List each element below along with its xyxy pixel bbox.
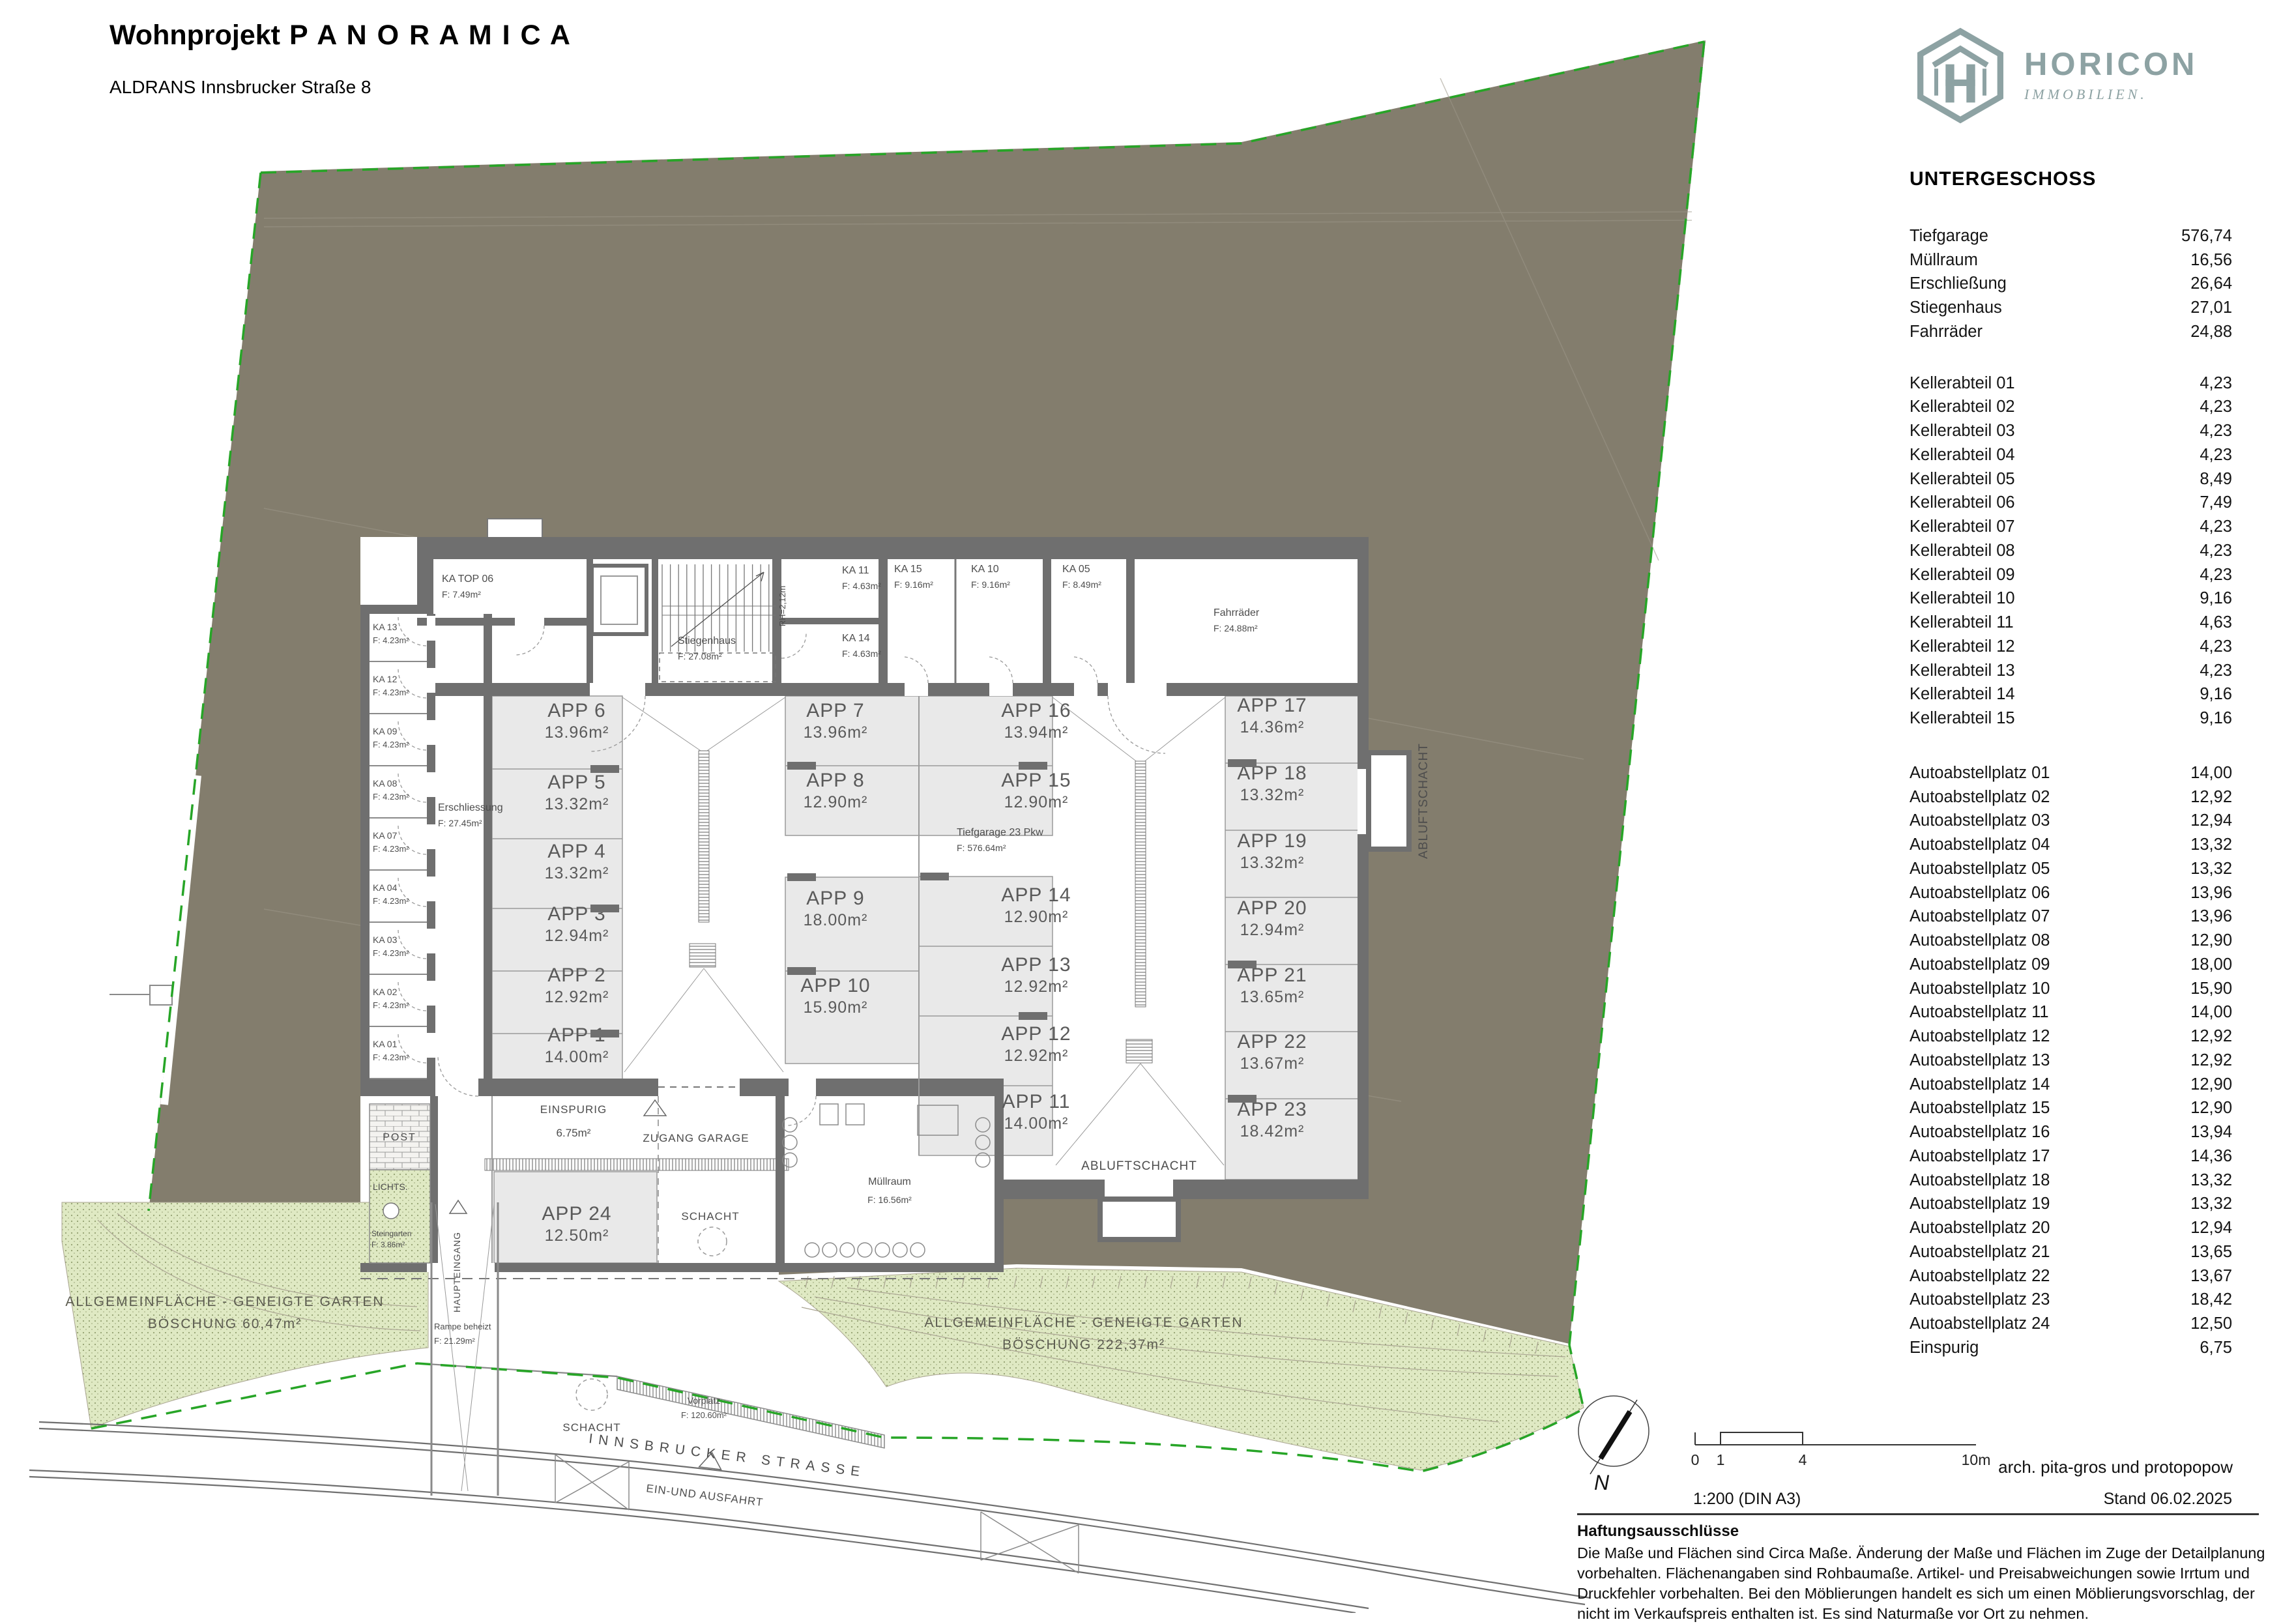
table-row: Autoabstellplatz 2213,67: [1910, 1264, 2232, 1288]
stall-area: 12.92m²: [1004, 978, 1069, 996]
row-value: 4,23: [2200, 374, 2232, 393]
table-row: Einspurig6,75: [1910, 1336, 2232, 1360]
table-group-auto: Autoabstellplatz 0114,00Autoabstellplatz…: [1910, 761, 2232, 1360]
ka-room-id: KA 02: [373, 987, 398, 997]
row-label: Autoabstellplatz 16: [1910, 1123, 2050, 1142]
row-label: Kellerabteil 08: [1910, 542, 2015, 560]
stall-id: APP 10: [800, 975, 870, 996]
table-row: Autoabstellplatz 1813,32: [1910, 1168, 2232, 1193]
row-value: 9,16: [2200, 709, 2232, 728]
row-value: 13,32: [2190, 1195, 2232, 1213]
row-label: Müllraum: [1910, 251, 1978, 270]
table-row: Autoabstellplatz 0613,96: [1910, 881, 2232, 905]
table-row: Autoabstellplatz 1015,90: [1910, 977, 2232, 1001]
ka-room-id: KA 01: [373, 1039, 398, 1049]
stall-id: APP 8: [806, 770, 865, 791]
row-value: 12,92: [2190, 1027, 2232, 1046]
stall-area: 18.42m²: [1240, 1122, 1305, 1140]
stall-area: 13.32m²: [1240, 786, 1305, 804]
abluftschacht-south: ABLUFTSCHACHT: [1081, 1159, 1197, 1240]
stall-id: APP 24: [542, 1203, 611, 1225]
table-group-keller: Kellerabteil 014,23Kellerabteil 024,23Ke…: [1910, 371, 2232, 731]
stall-id: APP 17: [1237, 695, 1307, 716]
ka-room-id: KA 12: [373, 674, 398, 684]
table-row: Autoabstellplatz 1312,92: [1910, 1049, 2232, 1073]
row-label: Kellerabteil 09: [1910, 566, 2015, 585]
row-label: Autoabstellplatz 02: [1910, 788, 2050, 807]
row-value: 12,92: [2190, 788, 2232, 807]
north-arrow: N: [1578, 1396, 1649, 1494]
row-value: 14,00: [2190, 1003, 2232, 1022]
stall-area: 12.50m²: [545, 1226, 609, 1245]
table-row: Kellerabteil 074,23: [1910, 515, 2232, 539]
table-row: Autoabstellplatz 1913,32: [1910, 1193, 2232, 1217]
tiefgarage-label: Tiefgarage 23 Pkw: [957, 827, 1043, 838]
row-value: 13,65: [2190, 1243, 2232, 1262]
schacht-circle-2: [576, 1379, 607, 1410]
svg-text:Rampe beheizt: Rampe beheizt: [434, 1322, 491, 1331]
vorplatz-area: F: 120.60m²: [681, 1410, 727, 1420]
table-row: Autoabstellplatz 0114,00: [1910, 761, 2232, 785]
table-row: Kellerabteil 134,23: [1910, 659, 2232, 683]
table-row: Kellerabteil 084,23: [1910, 539, 2232, 563]
top-room-area: F: 4.63m²: [842, 648, 881, 659]
row-value: 13,32: [2190, 1171, 2232, 1190]
row-value: 26,64: [2190, 274, 2232, 293]
stall-area: 14.00m²: [1004, 1114, 1069, 1133]
row-value: 4,23: [2200, 446, 2232, 465]
table-row: Tiefgarage576,74: [1910, 224, 2232, 248]
row-label: Autoabstellplatz 03: [1910, 811, 2050, 830]
elevator: [592, 566, 647, 634]
svg-text:ABLUFTSCHACHT: ABLUFTSCHACHT: [1417, 743, 1431, 859]
row-value: 12,94: [2190, 811, 2232, 830]
stall-area: 13.96m²: [804, 723, 868, 742]
stall-area: 14.36m²: [1240, 718, 1305, 736]
row-value: 13,32: [2190, 835, 2232, 854]
garden-right-area: BÖSCHUNG 222,37m²: [1002, 1337, 1165, 1352]
table-row: Kellerabteil 114,63: [1910, 611, 2232, 635]
ka-room-id: KA 13: [373, 622, 398, 632]
top-room-area: F: 27.08m²: [678, 651, 722, 661]
row-label: Kellerabteil 04: [1910, 446, 2015, 465]
table-row: Autoabstellplatz 1714,36: [1910, 1144, 2232, 1168]
stall-id: APP 9: [806, 888, 865, 909]
top-room-area: F: 4.63m²: [842, 581, 881, 591]
stall-area: 18.00m²: [804, 911, 868, 929]
stall-id: APP 12: [1001, 1023, 1071, 1045]
ka-room-id: KA 04: [373, 882, 398, 893]
table-row: Autoabstellplatz 1512,90: [1910, 1097, 2232, 1121]
svg-text:POST: POST: [383, 1132, 416, 1143]
table-row: Müllraum16,56: [1910, 248, 2232, 272]
stall-area: 13.67m²: [1240, 1054, 1305, 1073]
areas-table: Tiefgarage576,74Müllraum16,56Erschließun…: [1910, 224, 2232, 1360]
row-label: Kellerabteil 03: [1910, 422, 2015, 441]
table-row: Autoabstellplatz 0312,94: [1910, 809, 2232, 834]
boundary-marker: [150, 985, 172, 1005]
table-row: Erschließung26,64: [1910, 272, 2232, 297]
stand-date: Stand 06.02.2025: [1910, 1490, 2232, 1509]
garden-left-label: ALLGEMEINFLÄCHE - GENEIGTE GARTEN: [65, 1294, 384, 1309]
top-room-id: KA 14: [842, 633, 870, 644]
post-room: POST: [370, 1104, 430, 1170]
stall-area: 12.92m²: [545, 988, 609, 1006]
table-row: Autoabstellplatz 1212,92: [1910, 1024, 2232, 1049]
row-value: 8,49: [2200, 470, 2232, 489]
row-value: 13,96: [2190, 907, 2232, 926]
table-row: Autoabstellplatz 2318,42: [1910, 1288, 2232, 1312]
ka-room-id: KA 07: [373, 830, 398, 841]
row-label: Autoabstellplatz 08: [1910, 931, 2050, 950]
stall-area: 12.94m²: [545, 927, 609, 945]
project-label: Wohnprojekt: [109, 20, 280, 51]
table-row: Kellerabteil 124,23: [1910, 635, 2232, 659]
stall-area: 14.00m²: [545, 1048, 609, 1066]
table-group-general: Tiefgarage576,74Müllraum16,56Erschließun…: [1910, 224, 2232, 344]
row-label: Autoabstellplatz 14: [1910, 1075, 2050, 1094]
top-room-area: F: 24.88m²: [1213, 623, 1258, 633]
row-value: 18,42: [2190, 1290, 2232, 1309]
erschliessung-label: Erschliessung: [438, 802, 503, 813]
row-label: Kellerabteil 12: [1910, 637, 2015, 656]
top-room-area: F: 9.16m²: [894, 579, 933, 590]
row-label: Autoabstellplatz 12: [1910, 1027, 2050, 1046]
row-label: Autoabstellplatz 18: [1910, 1171, 2050, 1190]
row-value: 12,90: [2190, 1075, 2232, 1094]
ka-room-area: F: 4.23m²: [373, 688, 409, 697]
ka-room-id: KA 03: [373, 935, 398, 945]
brand-name: HORICON: [2024, 49, 2198, 81]
muellraum-label: Müllraum: [868, 1176, 911, 1187]
lichtschacht-cell: LICHTS. Steingarten F: 3.86m²: [370, 1170, 430, 1263]
table-row: Kellerabteil 024,23: [1910, 396, 2232, 420]
stall-area: 12.92m²: [1004, 1047, 1069, 1065]
company-logo: HORICON IMMOBILIEN.: [1908, 17, 2273, 134]
scale-note: 1:200 (DIN A3): [1693, 1490, 1801, 1509]
architect-note: arch. pita-gros und protopopow: [1564, 1457, 2233, 1477]
garden-right-label: ALLGEMEINFLÄCHE - GENEIGTE GARTEN: [924, 1315, 1243, 1330]
svg-text:HAUPTEINGANG: HAUPTEINGANG: [452, 1232, 462, 1312]
table-row: Autoabstellplatz 2012,94: [1910, 1216, 2232, 1240]
row-value: 6,75: [2200, 1339, 2232, 1357]
table-row: Autoabstellplatz 2412,50: [1910, 1312, 2232, 1336]
table-row: Stiegenhaus27,01: [1910, 296, 2232, 320]
ka-room-area: F: 4.23m²: [373, 635, 409, 645]
stall-id: APP 13: [1001, 954, 1071, 976]
stall-id: APP 7: [806, 700, 865, 721]
stall-id: APP 19: [1237, 830, 1307, 852]
row-label: Kellerabteil 05: [1910, 470, 2015, 489]
row-label: Autoabstellplatz 09: [1910, 955, 2050, 974]
table-row: Kellerabteil 109,16: [1910, 587, 2232, 611]
row-value: 4,23: [2200, 542, 2232, 560]
stall-id: APP 11: [1002, 1091, 1071, 1112]
top-room-id: KA TOP 06: [442, 573, 493, 585]
table-row: Kellerabteil 014,23: [1910, 371, 2232, 396]
erschliessung-area: F: 27.45m²: [438, 818, 482, 828]
table-row: Kellerabteil 159,16: [1910, 706, 2232, 731]
row-value: 14,36: [2190, 1147, 2232, 1166]
row-label: Autoabstellplatz 15: [1910, 1099, 2050, 1118]
table-row: Autoabstellplatz 0713,96: [1910, 905, 2232, 929]
top-room-id: KA 10: [971, 564, 999, 575]
row-label: Autoabstellplatz 11: [1910, 1003, 2049, 1022]
ka-room-area: F: 4.23m²: [373, 948, 409, 958]
row-value: 576,74: [2181, 227, 2232, 246]
row-value: 12,90: [2190, 931, 2232, 950]
table-row: Kellerabteil 067,49: [1910, 491, 2232, 515]
table-row: Autoabstellplatz 1412,90: [1910, 1073, 2232, 1097]
street-label: INNSBRUCKER STRASSE: [588, 1431, 866, 1480]
schacht-label-1: SCHACHT: [681, 1210, 739, 1223]
stall-area: 13.32m²: [545, 795, 609, 813]
row-label: Fahrräder: [1910, 323, 1983, 341]
svg-text:F: 3.86m²: F: 3.86m²: [371, 1240, 405, 1249]
ka-room-area: F: 4.23m²: [373, 844, 409, 854]
row-value: 12,94: [2190, 1219, 2232, 1238]
row-value: 4,23: [2200, 566, 2232, 585]
row-label: Autoabstellplatz 01: [1910, 764, 2050, 783]
row-label: Kellerabteil 02: [1910, 398, 2015, 416]
disclaimer-heading: Haftungsausschlüsse: [1577, 1522, 2267, 1541]
brand-tagline: IMMOBILIEN.: [2024, 86, 2198, 103]
row-label: Autoabstellplatz 22: [1910, 1267, 2050, 1286]
stall-area: 13.94m²: [1004, 723, 1069, 742]
row-label: Kellerabteil 15: [1910, 709, 2015, 728]
entry-exit-label: EIN-UND AUSFAHRT: [645, 1482, 764, 1509]
ka-room-area: F: 4.23m²: [373, 896, 409, 906]
row-label: Einspurig: [1910, 1339, 1979, 1357]
top-room-area: F: 8.49m²: [1062, 579, 1101, 590]
row-value: 4,23: [2200, 517, 2232, 536]
ka-room-area: F: 4.23m²: [373, 1052, 409, 1062]
table-row: Kellerabteil 058,49: [1910, 467, 2232, 491]
row-value: 27,01: [2190, 298, 2232, 317]
stall-id: APP 4: [547, 841, 606, 862]
table-row: Kellerabteil 149,16: [1910, 683, 2232, 707]
svg-text:ABLUFTSCHACHT: ABLUFTSCHACHT: [1081, 1159, 1197, 1173]
einspurig-label: EINSPURIG: [540, 1103, 607, 1116]
stall-area: 12.90m²: [1004, 793, 1069, 811]
stair-height-label: RH=2,12m: [777, 586, 787, 627]
row-label: Stiegenhaus: [1910, 298, 2002, 317]
muellraum-area: F: 16.56m²: [867, 1195, 912, 1205]
row-label: Kellerabteil 13: [1910, 661, 2015, 680]
floor-title: UNTERGESCHOSS: [1910, 168, 2096, 190]
row-value: 4,23: [2200, 422, 2232, 441]
stall-area: 12.90m²: [1004, 908, 1069, 926]
row-value: 12,90: [2190, 1099, 2232, 1118]
top-room-id: Fahrräder: [1213, 607, 1260, 618]
table-row: Kellerabteil 044,23: [1910, 443, 2232, 467]
ka-room-area: F: 4.23m²: [373, 740, 409, 749]
row-label: Autoabstellplatz 24: [1910, 1314, 2050, 1333]
table-row: Autoabstellplatz 0413,32: [1910, 833, 2232, 857]
row-label: Autoabstellplatz 13: [1910, 1051, 2050, 1070]
stall-id: APP 2: [547, 964, 606, 986]
ka-room-area: F: 4.23m²: [373, 792, 409, 802]
row-value: 16,56: [2190, 251, 2232, 270]
row-value: 15,90: [2190, 979, 2232, 998]
disclaimer-text: Die Maße und Flächen sind Circa Maße. Än…: [1577, 1543, 2267, 1624]
table-row: Autoabstellplatz 1114,00: [1910, 1001, 2232, 1025]
row-label: Erschließung: [1910, 274, 2007, 293]
top-room-area: F: 7.49m²: [442, 589, 481, 600]
row-value: 12,50: [2190, 1314, 2232, 1333]
table-row: Autoabstellplatz 0212,92: [1910, 785, 2232, 809]
ka-room-id: KA 09: [373, 726, 398, 736]
table-row: Autoabstellplatz 0513,32: [1910, 857, 2232, 881]
disclaimer-block: Haftungsausschlüsse Die Maße und Flächen…: [1577, 1522, 2267, 1624]
schacht-label-2: SCHACHT: [562, 1421, 620, 1434]
stall-id: APP 6: [547, 700, 606, 721]
svg-text:Steingarten: Steingarten: [371, 1229, 411, 1238]
row-label: Autoabstellplatz 23: [1910, 1290, 2050, 1309]
stall-area: 13.96m²: [545, 723, 609, 742]
page-title: WohnprojektP A N O R A M I C A: [109, 20, 572, 51]
row-value: 13,32: [2190, 860, 2232, 878]
row-value: 9,16: [2200, 589, 2232, 608]
table-row: Fahrräder24,88: [1910, 320, 2232, 344]
row-label: Autoabstellplatz 19: [1910, 1195, 2050, 1213]
row-label: Kellerabteil 07: [1910, 517, 2015, 536]
logo-house-icon: [1908, 23, 2012, 128]
top-room-id: KA 05: [1062, 564, 1090, 575]
row-value: 12,92: [2190, 1051, 2232, 1070]
stall-area: 12.94m²: [1240, 921, 1305, 939]
row-value: 4,23: [2200, 398, 2232, 416]
row-label: Kellerabteil 01: [1910, 374, 2015, 393]
row-value: 13,67: [2190, 1267, 2232, 1286]
top-room-id: KA 15: [894, 564, 922, 575]
stall-area: 12.90m²: [804, 793, 868, 811]
vorplatz-label: Vorplatz: [688, 1395, 721, 1406]
svg-text:LICHTS.: LICHTS.: [373, 1182, 408, 1192]
row-value: 9,16: [2200, 685, 2232, 704]
table-row: Autoabstellplatz 0918,00: [1910, 953, 2232, 977]
row-value: 13,96: [2190, 884, 2232, 903]
einspurig-area: 6.75m²: [557, 1127, 591, 1139]
stall-area: 13.65m²: [1240, 988, 1305, 1006]
row-value: 18,00: [2190, 955, 2232, 974]
row-label: Autoabstellplatz 04: [1910, 835, 2050, 854]
row-label: Autoabstellplatz 20: [1910, 1219, 2050, 1238]
row-label: Kellerabteil 14: [1910, 685, 2015, 704]
row-label: Autoabstellplatz 07: [1910, 907, 2050, 926]
project-name: P A N O R A M I C A: [289, 20, 572, 51]
row-value: 13,94: [2190, 1123, 2232, 1142]
top-room-id: Stiegenhaus: [678, 635, 736, 646]
table-row: Autoabstellplatz 0812,90: [1910, 929, 2232, 953]
row-label: Kellerabteil 10: [1910, 589, 2015, 608]
stall-id: APP 16: [1001, 700, 1071, 721]
ka-room-area: F: 4.23m²: [373, 1000, 409, 1010]
row-label: Tiefgarage: [1910, 227, 1988, 246]
project-address: ALDRANS Innsbrucker Straße 8: [109, 77, 371, 98]
row-value: 7,49: [2200, 493, 2232, 512]
ka-room-id: KA 08: [373, 778, 398, 789]
stall-area: 13.32m²: [545, 864, 609, 882]
row-value: 4,63: [2200, 613, 2232, 632]
row-label: Autoabstellplatz 21: [1910, 1243, 2050, 1262]
stall-id: APP 15: [1001, 770, 1071, 791]
row-value: 4,23: [2200, 637, 2232, 656]
stall-id: APP 20: [1237, 897, 1307, 919]
row-value: 24,88: [2190, 323, 2232, 341]
row-value: 4,23: [2200, 661, 2232, 680]
zugang-label: ZUGANG GARAGE: [643, 1132, 749, 1144]
table-row: Kellerabteil 094,23: [1910, 563, 2232, 587]
row-label: Kellerabteil 11: [1910, 613, 2014, 632]
footer-divider: [1577, 1513, 2259, 1515]
stall-id: APP 14: [1001, 884, 1071, 906]
stall-id: APP 5: [547, 772, 606, 793]
row-label: Autoabstellplatz 10: [1910, 979, 2050, 998]
svg-text:F: 21.29m²: F: 21.29m²: [434, 1336, 476, 1346]
row-value: 14,00: [2190, 764, 2232, 783]
table-row: Kellerabteil 034,23: [1910, 419, 2232, 443]
stall-area: 15.90m²: [804, 998, 868, 1017]
row-label: Autoabstellplatz 05: [1910, 860, 2050, 878]
row-label: Autoabstellplatz 17: [1910, 1147, 2050, 1166]
stall-area: 13.32m²: [1240, 854, 1305, 872]
row-label: Kellerabteil 06: [1910, 493, 2015, 512]
abluftschacht-east: ABLUFTSCHACHT: [1369, 743, 1431, 859]
stall-id: APP 22: [1237, 1031, 1307, 1052]
table-row: Autoabstellplatz 1613,94: [1910, 1120, 2232, 1144]
row-label: Autoabstellplatz 06: [1910, 884, 2050, 903]
table-row: Autoabstellplatz 2113,65: [1910, 1240, 2232, 1264]
top-room-id: KA 11: [842, 565, 869, 576]
garden-left-area: BÖSCHUNG 60,47m²: [148, 1316, 302, 1331]
tiefgarage-area: F: 576.64m²: [957, 843, 1006, 853]
top-room-area: F: 9.16m²: [971, 579, 1010, 590]
